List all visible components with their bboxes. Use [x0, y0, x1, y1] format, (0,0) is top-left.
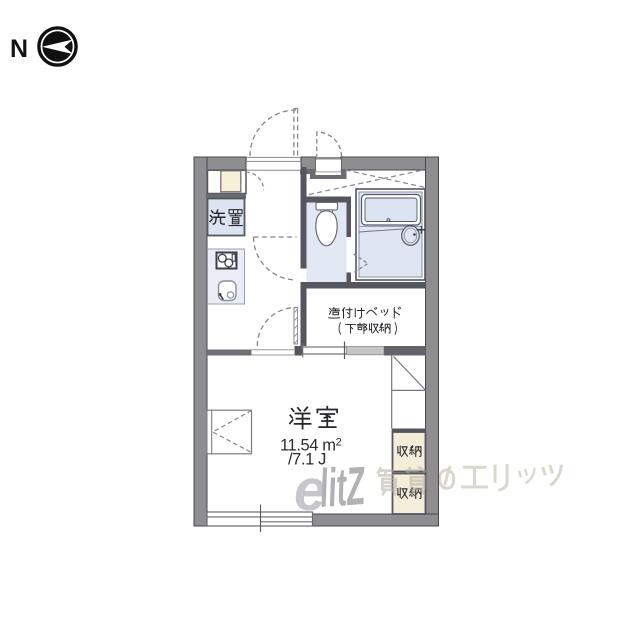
svg-text:/7.1 J: /7.1 J	[288, 451, 326, 469]
svg-text:N: N	[10, 35, 28, 63]
